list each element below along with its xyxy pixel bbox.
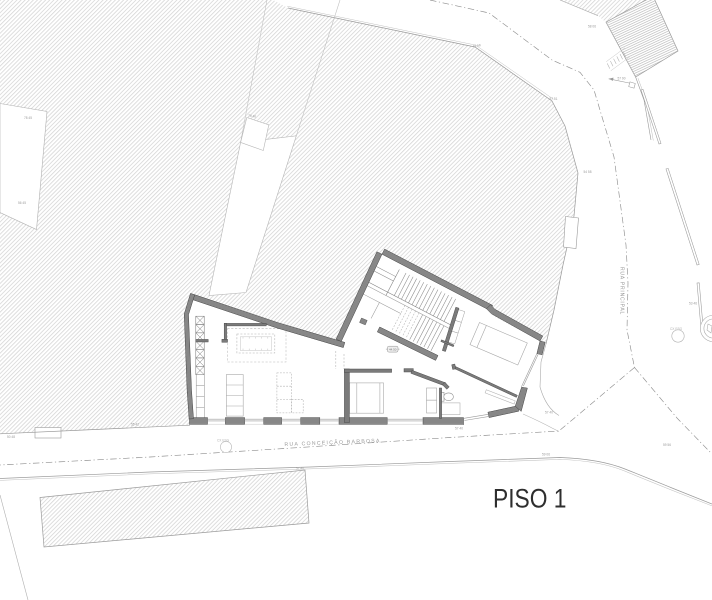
svg-text:50 48: 50 48 xyxy=(7,435,15,439)
svg-text:56 45: 56 45 xyxy=(18,201,26,205)
svg-text:57 90: 57 90 xyxy=(618,77,626,81)
svg-text:57 40: 57 40 xyxy=(545,411,553,415)
svg-text:53 46: 53 46 xyxy=(689,302,697,306)
svg-text:57 51: 57 51 xyxy=(550,97,558,101)
svg-text:PISO 1: PISO 1 xyxy=(493,485,566,514)
svg-text:55 42: 55 42 xyxy=(131,423,139,427)
svg-text:59 56: 59 56 xyxy=(663,443,671,447)
svg-text:59 06: 59 06 xyxy=(542,453,550,457)
svg-text:CX ESG: CX ESG xyxy=(670,327,683,331)
svg-text:78 45: 78 45 xyxy=(24,116,32,120)
svg-text:57 40: 57 40 xyxy=(455,427,463,431)
svg-text:CX ESG: CX ESG xyxy=(217,439,230,443)
svg-text:54 58: 54 58 xyxy=(584,170,592,174)
svg-text:44.50: 44.50 xyxy=(389,348,397,352)
svg-text:RUA PRINCIPAL: RUA PRINCIPAL xyxy=(619,267,625,315)
svg-text:58 06: 58 06 xyxy=(588,25,596,29)
svg-text:57 40: 57 40 xyxy=(296,467,304,471)
